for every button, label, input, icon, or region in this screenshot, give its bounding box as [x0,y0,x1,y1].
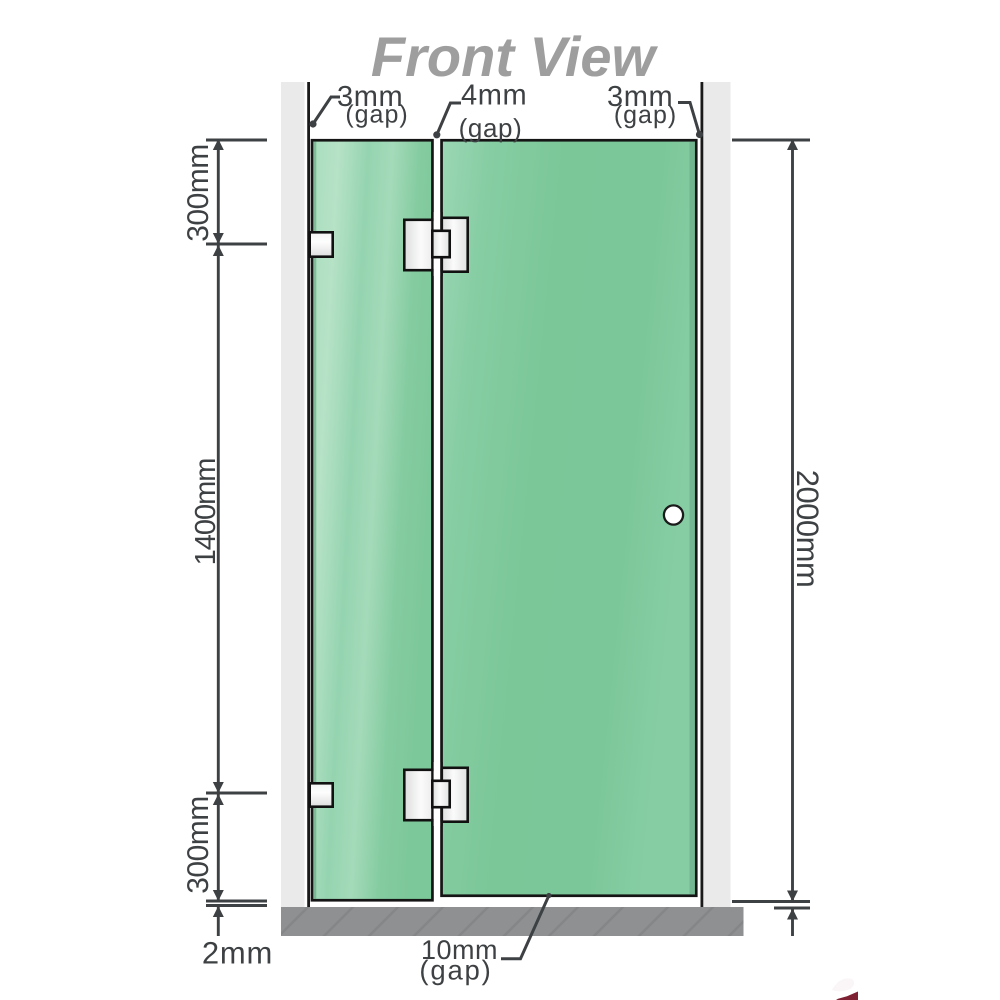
svg-text:(gap): (gap) [419,955,492,986]
svg-text:(gap): (gap) [345,101,408,129]
svg-text:300mm: 300mm [182,796,215,894]
svg-text:(gap): (gap) [459,113,523,143]
svg-text:2000mm: 2000mm [790,470,825,588]
svg-text:4mm: 4mm [461,80,527,112]
svg-text:300mm: 300mm [182,144,215,242]
svg-text:(gap): (gap) [614,101,677,129]
svg-text:2mm: 2mm [202,936,273,971]
svg-text:1400mm: 1400mm [190,459,222,566]
